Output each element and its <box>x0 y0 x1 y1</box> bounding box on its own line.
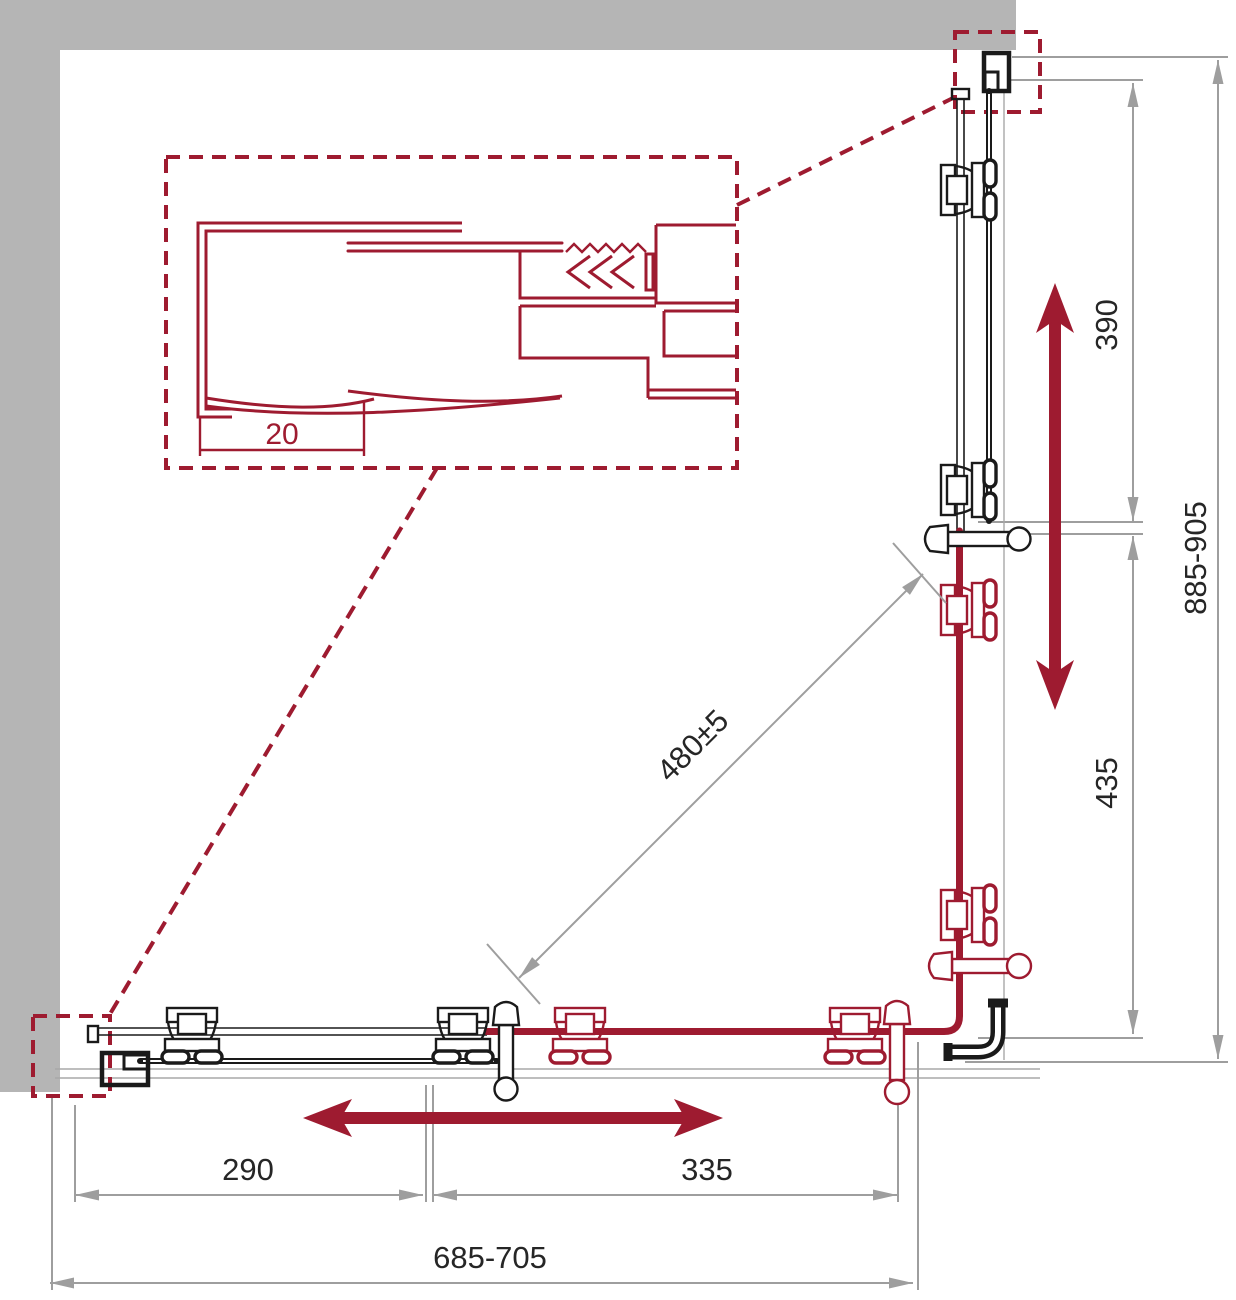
wall-profile-top <box>984 53 1009 91</box>
handle-knob-red-vertical-side <box>929 952 1031 980</box>
track-end-cap <box>88 1026 98 1042</box>
dimension-right-inner-top: 390 <box>1089 83 1139 521</box>
callout-leader-top <box>737 97 955 205</box>
dimension-label: 335 <box>681 1152 733 1187</box>
diagram-page: 20 <box>0 0 1236 1300</box>
dimension-bottom-inner-left: 290 <box>75 1152 423 1201</box>
dimension-bottom-inner-right: 335 <box>433 1152 897 1201</box>
seal-chevron-arrows <box>568 254 653 290</box>
dimension-label: 685-705 <box>433 1240 547 1275</box>
detail-profile-section: 20 <box>198 223 736 456</box>
vertical-panel-assembly <box>952 53 1009 531</box>
sliding-doors-red <box>487 531 960 1032</box>
dimension-diagonal-opening: 480±5 <box>487 543 946 1004</box>
dimension-label: 390 <box>1089 299 1124 351</box>
dimension-right-overall: 885-905 <box>1178 60 1224 1059</box>
slide-direction-arrow-vertical <box>1036 283 1074 710</box>
seal-serration <box>566 244 646 252</box>
roller-assembly-red <box>941 580 996 945</box>
roller-assembly-red-bottom <box>550 1008 885 1063</box>
dimension-label: 290 <box>222 1152 274 1187</box>
callout-leader-bottom <box>110 468 437 1014</box>
detail-view-box <box>166 157 737 468</box>
slide-direction-arrow-horizontal <box>303 1099 723 1137</box>
shower-enclosure-plan-drawing: 20 <box>0 0 1236 1300</box>
left-wall <box>0 0 60 1092</box>
handle-knob-black-horizontal-side <box>493 1002 519 1101</box>
dimension-label: 435 <box>1089 757 1124 809</box>
sliding-door-glass-rail <box>487 531 960 1032</box>
detail-callouts <box>33 32 1040 1096</box>
handle-knob-red-horizontal-side <box>884 1001 910 1104</box>
top-wall <box>0 0 1016 50</box>
handle-knob-black-vertical-side <box>925 525 1031 553</box>
dimension-label: 885-905 <box>1178 501 1213 615</box>
dimension-bottom-overall: 685-705 <box>50 1240 913 1289</box>
wall-surfaces <box>0 0 1016 1092</box>
dimension-right-inner-bottom: 435 <box>1089 536 1139 1034</box>
detail-dimension-label: 20 <box>265 418 298 451</box>
